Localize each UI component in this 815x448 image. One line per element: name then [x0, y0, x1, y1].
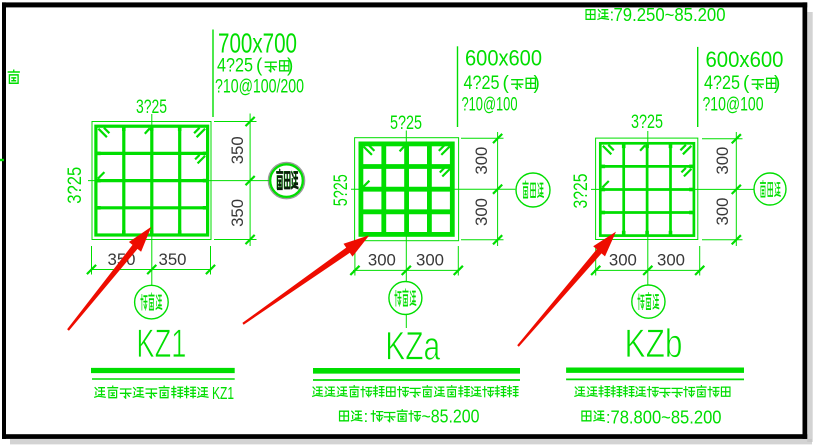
svg-text::: : — [364, 407, 369, 426]
svg-text:?10@100: ?10@100 — [462, 94, 518, 116]
svg-text:300: 300 — [416, 250, 444, 269]
svg-text:4?25: 4?25 — [704, 73, 740, 94]
svg-text:KZb: KZb — [625, 322, 683, 366]
svg-text:3?25: 3?25 — [570, 173, 592, 208]
svg-text:4?25: 4?25 — [464, 73, 500, 94]
svg-text:(: ( — [256, 56, 263, 77]
svg-text:300: 300 — [609, 250, 637, 269]
svg-text:3?25: 3?25 — [64, 167, 86, 204]
svg-text:300: 300 — [472, 147, 491, 175]
svg-text:KZ1: KZ1 — [212, 383, 234, 403]
svg-text:600x600: 600x600 — [465, 46, 542, 71]
svg-text:700x700: 700x700 — [218, 28, 297, 59]
svg-text:300: 300 — [472, 198, 491, 226]
svg-text:350: 350 — [228, 199, 247, 227]
svg-text:3?25: 3?25 — [631, 111, 663, 133]
svg-text:): ) — [287, 56, 293, 77]
svg-text:300: 300 — [368, 250, 396, 269]
svg-text:5?25: 5?25 — [330, 174, 352, 206]
svg-text:600x600: 600x600 — [706, 47, 784, 72]
svg-text:79.250~85.200: 79.250~85.200 — [614, 5, 726, 25]
svg-text:KZ1: KZ1 — [136, 322, 186, 366]
svg-text:300: 300 — [713, 198, 732, 226]
svg-text:?10@100/200: ?10@100/200 — [215, 76, 304, 98]
svg-text:?10@100: ?10@100 — [703, 94, 764, 116]
svg-text:350: 350 — [228, 136, 247, 164]
svg-text:(: ( — [743, 73, 750, 94]
svg-text:~85.200: ~85.200 — [422, 407, 480, 427]
svg-text:): ) — [774, 73, 780, 94]
svg-text:4?25: 4?25 — [217, 56, 253, 77]
svg-text:300: 300 — [657, 250, 685, 269]
svg-text:): ) — [534, 73, 540, 94]
svg-text:300: 300 — [713, 147, 732, 175]
svg-text:KZa: KZa — [385, 325, 441, 369]
svg-text:(: ( — [503, 73, 510, 94]
svg-text:78.800~85.200: 78.800~85.200 — [611, 408, 722, 428]
svg-text:350: 350 — [159, 250, 187, 269]
